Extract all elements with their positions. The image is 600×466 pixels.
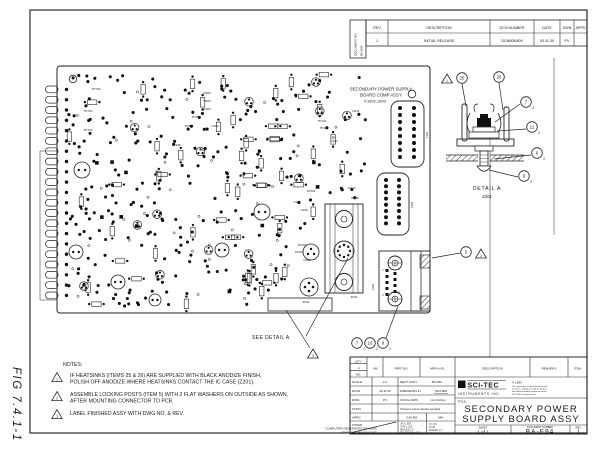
solder-pad: [252, 266, 255, 269]
resistor-pad: [266, 138, 268, 140]
solder-pad: [302, 90, 305, 93]
resistor-pad: [180, 147, 182, 149]
to-can-pad: [349, 250, 351, 252]
solder-pad: [198, 81, 201, 84]
solder-pad: [364, 118, 367, 121]
resistor-pad: [279, 125, 281, 127]
via: [169, 189, 171, 191]
solder-pad: [264, 275, 267, 278]
rev-description: INITIAL RELEASE: [424, 39, 455, 43]
solder-pad: [239, 118, 242, 121]
edge-connector-finger: [46, 127, 59, 134]
via: [335, 126, 337, 128]
solder-pad: [141, 182, 144, 185]
resistor-body: [141, 85, 145, 95]
to92-pad: [199, 148, 201, 150]
solder-pad: [207, 270, 210, 273]
solder-pad: [116, 79, 119, 82]
resistor-body: [110, 226, 114, 236]
resistor-pad: [245, 149, 247, 151]
date-label: DATE: [352, 389, 360, 393]
connector-pin-pad: [398, 134, 402, 138]
document-number-value: BA-E94: [526, 429, 554, 436]
solder-pad: [191, 230, 194, 233]
solder-pad: [234, 209, 237, 212]
connector-pin-pad: [384, 215, 388, 219]
solder-pad: [158, 179, 161, 182]
resistor-pad: [341, 175, 343, 177]
solder-pad: [242, 172, 245, 175]
edge-connector-finger: [46, 271, 59, 278]
dual-dims-value: mm (Inches): [431, 398, 446, 402]
solder-pad: [104, 195, 107, 198]
solder-pad: [105, 121, 108, 124]
solder-pad: [71, 215, 74, 218]
connector-pin-pad: [412, 134, 416, 138]
solder-pad: [220, 210, 223, 213]
to92-pad: [136, 222, 138, 224]
resistor-body: [132, 277, 142, 281]
transistor-pad: [308, 290, 311, 293]
resistor-body: [294, 183, 304, 187]
balloon-qty: 2: [538, 131, 540, 135]
connector-pin-pad: [397, 184, 401, 188]
note-1-line-2: POLISH OFF ANODIZE WHERE HEATSINKS CONTA…: [70, 380, 254, 386]
solder-pad: [83, 230, 86, 233]
via: [296, 155, 298, 157]
resistor-body: [236, 187, 240, 197]
resistor-body: [279, 171, 283, 181]
solder-pad: [77, 267, 80, 270]
resistor-pad: [154, 173, 156, 175]
solder-pad: [85, 74, 88, 77]
solder-pad: [203, 128, 206, 131]
tol-mm-header: MM: [438, 416, 443, 420]
dsub-pin: [386, 275, 389, 278]
transistor-pad: [308, 282, 311, 285]
solder-pad: [244, 162, 247, 165]
solder-pad: [165, 152, 168, 155]
solder-pad: [93, 211, 96, 214]
solder-pad: [225, 269, 228, 272]
via: [88, 244, 90, 246]
solder-pad: [250, 259, 253, 262]
via: [136, 91, 138, 93]
panel-hatch: [490, 155, 524, 161]
edge-connector-finger: [46, 199, 59, 206]
via: [264, 101, 266, 103]
note-flag-number: 3: [312, 354, 314, 358]
solder-pad: [326, 95, 329, 98]
connector-pin-pad: [398, 148, 402, 152]
solder-pad: [178, 251, 181, 254]
solder-pad: [112, 220, 115, 223]
see-detail-a-label: SEE DETAIL A: [252, 335, 290, 341]
via: [100, 187, 102, 189]
solder-pad: [140, 244, 143, 247]
resistor-body: [231, 235, 241, 239]
transistor-pad: [304, 286, 307, 289]
to92-pad: [154, 215, 156, 217]
ref-designator: R364: [203, 107, 211, 111]
solder-pad: [84, 188, 87, 191]
resistor-pad: [169, 173, 171, 175]
resistor-pad: [142, 95, 144, 97]
to-can-pad: [339, 246, 341, 248]
ic-transistor-body: [477, 118, 491, 127]
rev-dwn: PV: [565, 39, 570, 43]
resistor-pad: [217, 133, 219, 135]
solder-pad: [67, 113, 70, 116]
solder-pad: [290, 175, 293, 178]
resistor-pad: [254, 138, 256, 140]
parts-item-header: ITEM: [574, 367, 582, 371]
dsub-pin: [394, 290, 397, 293]
heatsink-mount-hole-inner: [341, 216, 347, 222]
solder-pad: [226, 176, 229, 179]
resistor-pad: [275, 85, 277, 87]
resistor-pad: [108, 183, 110, 185]
ref-designator: R311: [353, 109, 360, 113]
solder-pad: [255, 278, 258, 281]
resistor-pad: [240, 162, 242, 164]
edge-connector-pad: [65, 201, 68, 204]
connector-pin-pad: [384, 184, 388, 188]
via: [197, 293, 199, 295]
copyright-text: © 1993: [512, 381, 522, 385]
resistor-pad: [158, 168, 160, 170]
solder-pad: [186, 241, 189, 244]
resistor-pad: [154, 245, 156, 247]
balloon-qty: 2: [376, 347, 378, 351]
resistor-pad: [318, 101, 320, 103]
to92-pad: [317, 112, 319, 114]
connector-pin-pad: [397, 203, 401, 207]
solder-pad: [272, 97, 275, 100]
legal-line-3: tion without written permission from: [512, 390, 546, 393]
solder-pad: [92, 160, 95, 163]
edge-connector-finger: [46, 292, 59, 299]
resistor-body: [231, 115, 235, 125]
to92-pad: [208, 247, 210, 249]
resistor-body: [155, 141, 159, 151]
detail-a-title: DETAIL A: [473, 186, 502, 192]
solder-pad: [123, 91, 126, 94]
resistor-pad: [312, 203, 314, 205]
solder-pad: [126, 297, 129, 300]
parts-mfrsno-header: MFR's NO.: [430, 367, 445, 371]
solder-pad: [188, 92, 191, 95]
solder-pad: [163, 155, 166, 158]
tolerances-note: Tolerances (unless otherwise specified): [400, 408, 440, 411]
title-label: TITLE:: [458, 400, 467, 404]
edge-connector-finger: [46, 179, 59, 186]
ref-designator: R363: [203, 99, 211, 103]
edge-connector-finger: [46, 210, 59, 217]
resistor-body: [260, 286, 264, 296]
resistor-pad: [192, 238, 194, 240]
to92-pad: [132, 128, 134, 130]
solder-pad: [159, 212, 162, 215]
capacitor-pad: [156, 299, 158, 301]
to92-pad: [197, 152, 199, 154]
connector-pin-pad: [397, 190, 401, 194]
resistor-pad: [290, 74, 292, 76]
solder-pad: [160, 135, 163, 138]
balloon-qty: 2: [363, 347, 365, 351]
edge-connector-finger: [46, 189, 59, 196]
solder-pad: [292, 133, 295, 136]
resistor-pad: [226, 194, 228, 196]
solder-pad: [363, 162, 366, 165]
resistor-pad: [247, 284, 249, 286]
leader-line: [497, 129, 526, 131]
solder-pad: [251, 213, 254, 216]
ref-designator: Z202: [303, 300, 310, 304]
solder-pad: [161, 219, 164, 222]
next-assy-label: NEXT ASSY.: [400, 380, 418, 384]
smd-component: [260, 224, 264, 228]
heatsink-base: [457, 139, 514, 146]
rev-date: 93.11.30: [540, 39, 554, 43]
solder-pad: [203, 155, 206, 158]
solder-pad: [94, 263, 97, 266]
din-connector-outline: [377, 173, 409, 235]
connector-pin-pad: [398, 120, 402, 124]
dsub-pin: [386, 287, 389, 290]
capacitor-pad: [258, 211, 260, 213]
solder-pad: [245, 113, 248, 116]
screw-dome-head: [477, 166, 491, 171]
solder-pad: [246, 109, 249, 112]
to92-pad: [161, 275, 163, 277]
solder-pad: [146, 98, 149, 101]
clip-hooks: [474, 104, 494, 112]
solder-pad: [145, 108, 148, 111]
title-block: QTY -1 NO. UM PART NO. MFR's NO. DESCRIP…: [350, 357, 587, 436]
solder-pad: [229, 288, 232, 291]
balloon-number: 11: [530, 125, 535, 130]
ref-designator: TP703: [84, 128, 93, 132]
solder-pad: [109, 75, 112, 78]
lock-hardware: [420, 255, 430, 268]
solder-pad: [258, 150, 261, 153]
resistor-pad: [98, 101, 100, 103]
solder-pad: [191, 111, 194, 114]
resistor-body: [274, 88, 278, 98]
edge-connector-pad: [65, 88, 68, 91]
to92-pad: [138, 225, 140, 227]
edge-connector-finger: [46, 220, 59, 227]
solder-pad: [78, 152, 81, 155]
ref-designator: C206: [300, 208, 308, 212]
edge-connector-finger: [46, 117, 59, 124]
solder-pad: [127, 236, 130, 239]
solder-pad: [303, 222, 306, 225]
solder-pad: [135, 188, 138, 191]
spring-clip-left: [467, 113, 471, 134]
via: [115, 139, 117, 141]
resistor-pad: [80, 193, 82, 195]
assy-label-rect: [268, 298, 332, 311]
solder-pad: [204, 259, 207, 262]
solder-pad: [202, 219, 205, 222]
resistor-pad: [143, 278, 145, 280]
capacitor-footprint: [215, 243, 229, 257]
resistor-pad: [236, 236, 238, 238]
via: [231, 229, 233, 231]
resistor-body: [87, 100, 97, 104]
solder-pad: [78, 145, 81, 148]
capacitor-footprint: [149, 294, 161, 306]
notes-heading: NOTES:: [63, 362, 82, 368]
solder-pad: [276, 233, 279, 236]
solder-pad: [256, 153, 259, 156]
solder-pad: [213, 197, 216, 200]
solder-pad: [69, 217, 72, 220]
detail-a-subtitle: Z201: [482, 194, 492, 199]
solder-pad: [136, 301, 139, 304]
solder-pad: [244, 278, 247, 281]
dcn-col-header: DCN NUMBER: [500, 26, 525, 30]
edge-connector-pad: [65, 170, 68, 173]
edge-connector-pad: [65, 139, 68, 142]
flat-washer: [475, 146, 493, 151]
resistor-pad: [332, 131, 334, 133]
solder-pad: [349, 172, 352, 175]
solder-pad: [125, 125, 128, 128]
solder-pad: [249, 105, 252, 108]
heatsink-mount-hole-inner: [341, 279, 347, 285]
via: [270, 264, 272, 266]
resistor-body: [225, 235, 235, 239]
leader-line: [432, 253, 460, 258]
balloon-number: 10: [368, 341, 373, 346]
to92-pad: [250, 254, 252, 256]
resistor-body: [247, 274, 251, 284]
solder-pad: [309, 198, 312, 201]
to92-pad: [158, 215, 160, 217]
locking-post-slot: [388, 296, 402, 302]
connector-pin-pad: [384, 197, 388, 201]
solder-pad: [344, 118, 347, 121]
to92-pad: [250, 102, 252, 104]
resistor-pad: [87, 279, 89, 281]
connector-pin-pad: [384, 209, 388, 213]
solder-pad: [114, 168, 117, 171]
panel-hatch: [446, 155, 478, 161]
connector-pin-pad: [412, 120, 416, 124]
edge-connector-pad: [65, 98, 68, 101]
solder-pad: [67, 284, 70, 287]
mounting-plate: [469, 132, 499, 138]
edge-connector-pad: [65, 160, 68, 163]
to92-pad: [248, 251, 250, 253]
solder-pad: [158, 187, 161, 190]
solder-pad: [346, 151, 349, 154]
ref-designator: C205: [293, 200, 301, 204]
solder-pad: [204, 147, 207, 150]
solder-pad: [220, 87, 223, 90]
resistor-body: [270, 137, 280, 141]
balloon-qty: 2: [389, 347, 391, 351]
rev-value-block: 1: [577, 430, 580, 436]
solder-pad: [297, 108, 300, 111]
solder-pad: [93, 77, 96, 80]
solder-pad: [169, 98, 172, 101]
resistor-pad: [284, 264, 286, 266]
pin-number: 1: [382, 269, 384, 272]
solder-pad: [226, 84, 229, 87]
solder-pad: [175, 249, 178, 252]
transistor-pad: [312, 286, 315, 289]
resistor-pad: [309, 95, 311, 97]
solder-pad: [184, 89, 187, 92]
solder-pad: [280, 277, 283, 280]
resistor-pad: [260, 155, 262, 157]
solder-pad: [220, 85, 223, 88]
smd-component: [110, 160, 114, 164]
resistor-pad: [232, 126, 234, 128]
solder-pad: [187, 128, 190, 131]
balloon-qty: 2: [530, 180, 532, 184]
solder-pad: [360, 169, 363, 172]
to-can-pad: [347, 254, 349, 256]
revision-table: DOCUMENT NO. BA-E94 REV DESCRIPTION DCN …: [350, 20, 587, 58]
solder-pad: [128, 291, 131, 294]
scale-value: 2:1: [383, 380, 388, 384]
solder-pad: [104, 254, 107, 257]
solder-pad: [223, 96, 226, 99]
dimension-bracket: [40, 151, 57, 300]
parts-um-header: UM: [373, 367, 378, 371]
resistor-pad: [261, 283, 263, 285]
solder-pad: [155, 271, 158, 274]
solder-pad: [109, 141, 112, 144]
via: [272, 185, 274, 187]
edge-connector-pad: [65, 211, 68, 214]
via: [148, 125, 150, 127]
resistor-pad: [305, 184, 307, 186]
solder-pad: [112, 136, 115, 139]
resistor-pad: [247, 269, 249, 271]
brand-subtitle: INSTRUMENTS INC.: [458, 392, 501, 396]
solder-pad: [86, 80, 89, 83]
capacitor-pad: [224, 249, 226, 251]
solder-pad: [234, 244, 237, 247]
solder-pad: [89, 132, 92, 135]
solder-pad: [216, 150, 219, 153]
edge-connector-finger: [46, 158, 59, 165]
edge-connector-finger: [46, 282, 59, 289]
rev-col-header: REV: [373, 26, 381, 30]
dims-label: DIMENSIONS IN: [400, 389, 421, 393]
edge-connector-pad: [65, 119, 68, 122]
note-2-line-1: ASSEMBLE LOCKING POSTS (ITEM 5) WITH 2 F…: [70, 392, 288, 398]
ref-designator: J301: [425, 131, 429, 138]
sheet-value: 1 of 1: [478, 429, 490, 434]
solder-pad: [187, 175, 190, 178]
heatsink-mount-hole: [336, 211, 353, 228]
resistor-pad: [341, 161, 343, 163]
brand-name: SCI-TEC: [468, 383, 500, 390]
solder-pad: [151, 77, 154, 80]
resistor-pad: [242, 236, 244, 238]
solder-pad: [285, 245, 288, 248]
balloon-qty: 2: [543, 157, 545, 161]
capacitor-pad: [114, 281, 116, 283]
smd-component: [316, 185, 320, 189]
